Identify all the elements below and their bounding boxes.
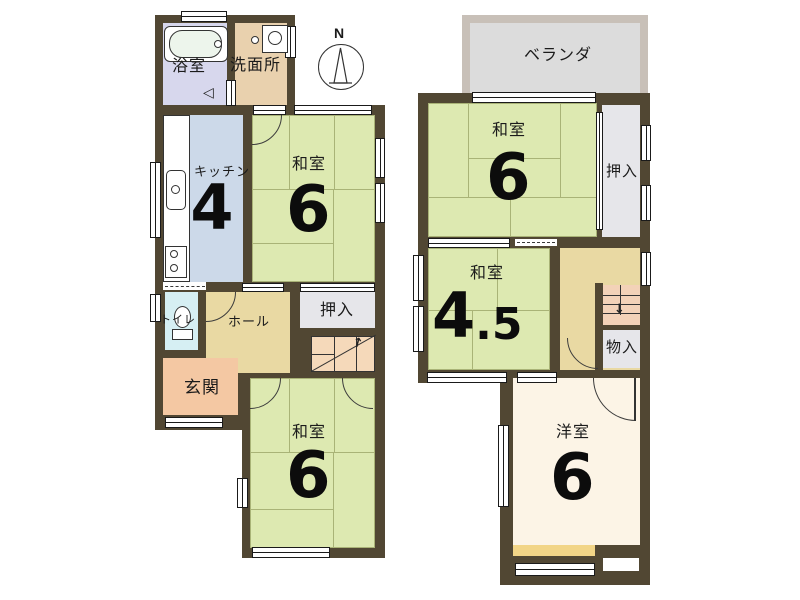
- room-label-youshitsu: 洋室: [556, 424, 590, 442]
- room-size-washitsu-2f: 6: [486, 146, 530, 210]
- door-leaf: [634, 378, 636, 421]
- sliding-door-oshiire-2f: [596, 112, 603, 230]
- window: [413, 255, 424, 301]
- window-veranda: [472, 92, 596, 103]
- window: [641, 252, 651, 286]
- room-label-monoire: 物入: [606, 340, 638, 357]
- wall-opening: [602, 557, 640, 572]
- room-label-washitsu-2f: 和室: [492, 122, 526, 140]
- open-boundary-dashed: [517, 242, 555, 243]
- window: [413, 306, 424, 352]
- sliding-door: [428, 238, 510, 248]
- window-sill: [513, 545, 595, 556]
- room-size-washitsu-small: 4 .5: [432, 285, 522, 347]
- room-size-youshitsu: 6: [550, 446, 594, 510]
- tatami-line: [560, 103, 561, 197]
- floor-plan-2f: ↓ ベランダ 和室 6 押入 和室 4 .5 物入 洋室 6: [0, 0, 800, 600]
- stairs-down-arrow-icon: ↓: [614, 302, 625, 317]
- window: [427, 372, 507, 383]
- floor-plan-canvas: ◁ ↑ N 浴室 洗面所 キッチン: [0, 0, 800, 600]
- window: [641, 185, 651, 221]
- room-label-veranda: ベランダ: [524, 47, 592, 65]
- stair-line: [603, 295, 640, 296]
- room-size-small: .5: [475, 303, 522, 347]
- room-label-washitsu-small: 和室: [470, 265, 504, 283]
- window: [641, 125, 651, 161]
- room-label-oshiire-2f: 押入: [606, 164, 638, 181]
- window: [498, 425, 509, 507]
- room-size-big: 4: [432, 285, 475, 347]
- window: [515, 563, 595, 576]
- tatami-line: [468, 103, 469, 197]
- window: [517, 372, 557, 383]
